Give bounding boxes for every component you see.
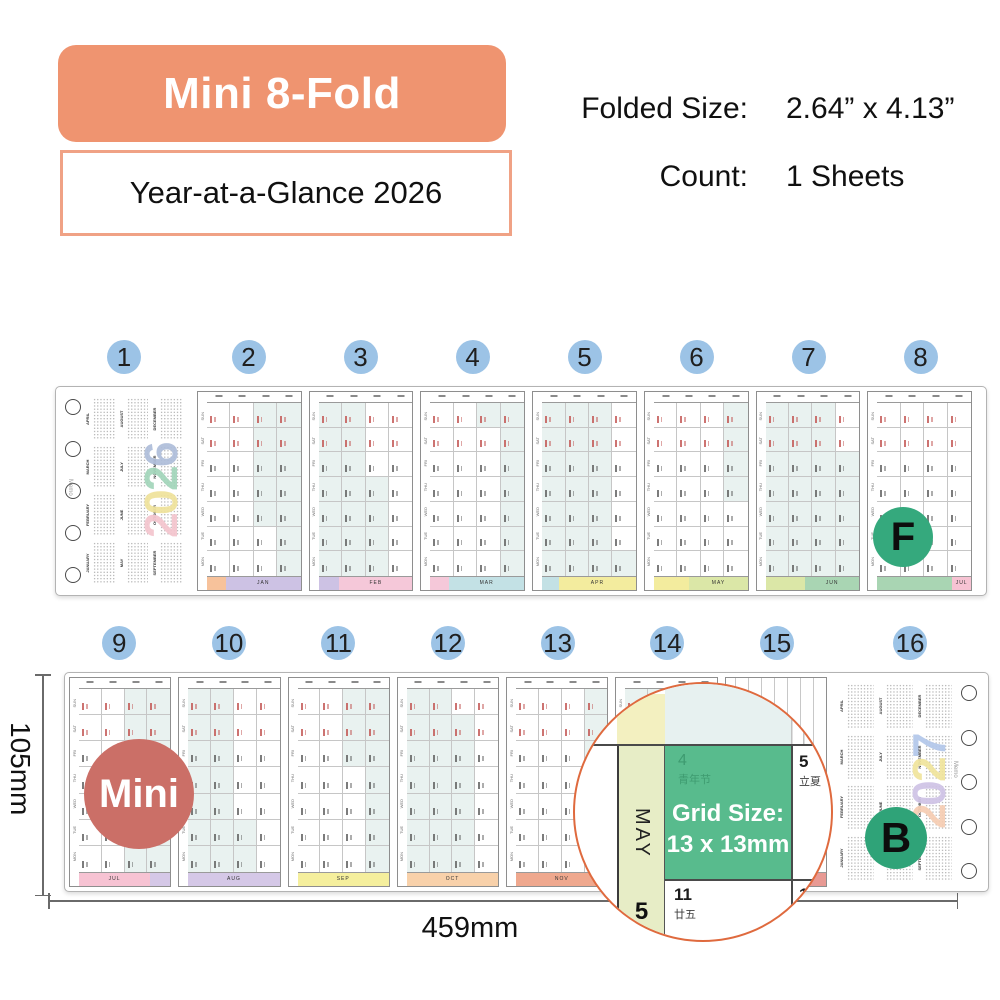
grid-cell	[320, 715, 343, 741]
day-label: SUN	[424, 412, 428, 420]
day-label: SAT	[291, 725, 295, 732]
grid-cell	[430, 403, 453, 428]
grid-cell	[407, 767, 430, 793]
day-label: WED	[201, 507, 205, 516]
grid-cell	[789, 527, 812, 552]
year-digit: 7	[902, 735, 956, 759]
mini-month: FEBRUARY	[88, 493, 115, 537]
grid-size-line2: 13 x 13mm	[665, 829, 791, 860]
spec-value-count: 1 Sheets	[786, 160, 954, 194]
grid-cell	[320, 846, 343, 872]
grid-cell	[948, 551, 971, 576]
weekday-tick	[234, 678, 257, 688]
grid-cell	[407, 846, 430, 872]
weekday-tick	[501, 392, 524, 402]
grid-cell	[319, 527, 342, 552]
grid-cell	[516, 820, 539, 846]
mini-month-label: AUGUST	[879, 698, 883, 715]
weekday-tick	[430, 392, 453, 402]
day-label: FRI	[510, 750, 514, 756]
month-footer: JUN	[766, 576, 860, 590]
day-label: WED	[424, 507, 428, 516]
grid-cell	[102, 715, 125, 741]
grid-cell	[901, 477, 924, 502]
may-month-band: MAY 5	[617, 746, 665, 940]
grid-cell	[562, 689, 585, 715]
weekday-tick	[320, 678, 343, 688]
grid-cell	[589, 452, 612, 477]
panel-number: 7	[792, 340, 826, 374]
weekday-header	[654, 392, 748, 403]
weekday-header	[542, 392, 636, 403]
day-label: THU	[759, 483, 763, 491]
grid-cell	[430, 502, 453, 527]
month-footer-segment: MAR	[449, 577, 524, 590]
day-label: SUN	[536, 412, 540, 420]
grid-cell	[589, 477, 612, 502]
grid-cell	[188, 689, 211, 715]
grid-cell	[452, 767, 475, 793]
day-label: TUE	[312, 532, 316, 540]
grid-cell	[257, 846, 280, 872]
panel-grid: OCT	[407, 678, 498, 886]
grid-cell	[298, 820, 321, 846]
grid-cell	[125, 689, 148, 715]
month-footer: JAN	[207, 576, 301, 590]
grid-cell	[924, 452, 947, 477]
panel-number-slot: 16	[835, 626, 985, 660]
grid-cell	[789, 477, 812, 502]
grid-cell	[452, 846, 475, 872]
grid-cell	[452, 820, 475, 846]
day-label: MON	[871, 557, 875, 566]
day-label: SAT	[312, 437, 316, 444]
grid-cell	[298, 741, 321, 767]
grid-cell	[230, 452, 253, 477]
spec-label-folded-size: Folded Size:	[548, 92, 748, 126]
grid-cell	[343, 794, 366, 820]
grid-cell	[836, 403, 859, 428]
mini-month-label: AUGUST	[120, 411, 124, 428]
binder-hole	[65, 525, 81, 541]
day-label: SAT	[400, 725, 404, 732]
grid-cell	[836, 452, 859, 477]
grid-cell	[430, 741, 453, 767]
day-label: TUE	[201, 532, 205, 540]
grid-cell	[724, 477, 747, 502]
grid-cell	[407, 715, 430, 741]
grid-cell	[701, 403, 724, 428]
panel-number-slot: 1	[59, 340, 189, 374]
grid-cell	[948, 428, 971, 453]
grid-cell	[254, 502, 277, 527]
grid-cell	[125, 846, 148, 872]
month-footer-segment	[542, 577, 559, 590]
grid-cell	[677, 527, 700, 552]
grid-cell	[477, 452, 500, 477]
grid-cell	[475, 715, 498, 741]
day-label: TUE	[536, 532, 540, 540]
month-footer: MAR	[430, 576, 524, 590]
year-digit: 2	[902, 758, 956, 782]
mini-month-label: MAY	[120, 559, 124, 568]
grid-cell	[539, 794, 562, 820]
grid-cell	[612, 403, 635, 428]
day-label: THU	[647, 483, 651, 491]
mini-month-texture	[93, 542, 115, 584]
week-grid	[654, 403, 748, 576]
grid-cell	[298, 794, 321, 820]
grid-cell	[230, 551, 253, 576]
weekday-tick	[207, 392, 230, 402]
panel-number: 6	[680, 340, 714, 374]
day-label: TUE	[291, 826, 295, 834]
weekday-tick	[539, 678, 562, 688]
grid-cell	[320, 794, 343, 820]
weekday-header	[319, 392, 413, 403]
grid-cell	[277, 527, 300, 552]
grid-cell	[836, 502, 859, 527]
day-label: FRI	[291, 750, 295, 756]
grid-cell	[539, 689, 562, 715]
day-label: SAT	[73, 725, 77, 732]
weekday-tick	[430, 678, 453, 688]
grid-cell	[566, 403, 589, 428]
grid-cell	[211, 820, 234, 846]
day-label: WED	[73, 799, 77, 808]
weekday-tick	[924, 392, 947, 402]
product-title-banner: Mini 8-Fold	[58, 45, 506, 142]
day-label-rail: SUNSATFRITHUWEDTUEMON	[868, 392, 877, 590]
grid-cell	[188, 820, 211, 846]
grid-cell	[407, 820, 430, 846]
grid-cell	[924, 477, 947, 502]
weekday-tick	[516, 678, 539, 688]
day-label: FRI	[400, 750, 404, 756]
memo-label: Memo	[67, 479, 73, 496]
grid-cell	[257, 794, 280, 820]
grid-cell	[677, 551, 700, 576]
grid-cell	[257, 767, 280, 793]
grid-cell	[342, 403, 365, 428]
grid-cell	[320, 767, 343, 793]
weekday-tick	[257, 678, 280, 688]
grid-cell	[766, 527, 789, 552]
grid-cell	[654, 477, 677, 502]
grid-cell	[701, 551, 724, 576]
day-label: THU	[424, 483, 428, 491]
grid-cell	[298, 767, 321, 793]
grid-cell	[366, 428, 389, 453]
calendar-panel: SUNSATFRITHUWEDTUEMONMAY	[644, 391, 749, 591]
panel-number: 3	[344, 340, 378, 374]
grid-cell	[724, 403, 747, 428]
grid-cell	[366, 767, 389, 793]
month-footer: FEB	[319, 576, 413, 590]
weekday-tick	[724, 392, 747, 402]
grid-cell	[948, 527, 971, 552]
grid-cell	[366, 689, 389, 715]
grid-cell	[612, 527, 635, 552]
grid-cell	[211, 794, 234, 820]
grid-cell	[207, 502, 230, 527]
grid-cell	[234, 846, 257, 872]
grid-cell	[342, 428, 365, 453]
mini-month-label: JULY	[879, 752, 883, 762]
year-digit: 2	[134, 467, 188, 491]
grid-cell	[147, 689, 170, 715]
month-footer: SEP	[298, 872, 389, 886]
day-label: TUE	[759, 532, 763, 540]
day-label-rail: SUNSATFRITHUWEDTUEMON	[533, 392, 542, 590]
week-grid	[207, 403, 301, 576]
highlight-cell-date: 4 青年节	[678, 752, 711, 787]
grid-cell	[501, 403, 524, 428]
panel-number-slot: 5	[532, 340, 637, 374]
grid-cell	[366, 820, 389, 846]
mini-month-label: APRIL	[840, 700, 844, 712]
panel-number-slot: 4	[420, 340, 525, 374]
grid-cell	[343, 846, 366, 872]
day-label-rail: SUNSATFRITHUWEDTUEMON	[507, 678, 516, 886]
binder-hole	[961, 730, 977, 746]
grid-cell	[654, 428, 677, 453]
grid-cell	[366, 551, 389, 576]
grid-cell	[612, 452, 635, 477]
notes-ruled-columns	[791, 684, 831, 746]
grid-cell	[475, 689, 498, 715]
grid-cell	[277, 502, 300, 527]
grid-cell	[812, 551, 835, 576]
weekday-tick	[562, 678, 585, 688]
grid-cell	[147, 846, 170, 872]
grid-cell	[389, 403, 412, 428]
day-label: WED	[312, 507, 316, 516]
month-footer: MAY	[654, 576, 748, 590]
grid-cell	[342, 477, 365, 502]
grid-cell	[454, 452, 477, 477]
year-overlay: 2026	[134, 393, 188, 589]
binder-hole	[65, 399, 81, 415]
grid-cell	[724, 452, 747, 477]
weekday-header	[877, 392, 971, 403]
grid-cell	[366, 794, 389, 820]
grid-cell	[836, 527, 859, 552]
day-label: SAT	[647, 437, 651, 444]
grid-cell	[877, 452, 900, 477]
day-label-rail: SUNSATFRITHUWEDTUEMON	[70, 678, 79, 886]
grid-cell	[207, 452, 230, 477]
grid-cell	[924, 403, 947, 428]
grid-cell	[430, 477, 453, 502]
grid-cell	[539, 820, 562, 846]
grid-cell	[102, 689, 125, 715]
grid-cell	[452, 715, 475, 741]
grid-cell	[407, 689, 430, 715]
grid-cell	[211, 767, 234, 793]
cell-note: 立夏	[799, 773, 821, 789]
panel-number-row: 12345678	[55, 340, 987, 374]
grid-cell	[677, 477, 700, 502]
day-label: TUE	[424, 532, 428, 540]
panel-number: 1	[107, 340, 141, 374]
grid-cell	[430, 715, 453, 741]
weekday-header	[207, 392, 301, 403]
day-label: TUE	[400, 826, 404, 834]
day-label: MON	[73, 852, 77, 861]
mini-month-label: JULY	[120, 462, 124, 472]
grid-cell	[475, 767, 498, 793]
month-footer-segment	[430, 577, 449, 590]
grid-cell	[501, 452, 524, 477]
grid-cell	[542, 477, 565, 502]
panel-grid: SEP	[298, 678, 389, 886]
day-label: THU	[536, 483, 540, 491]
day-label: SUN	[73, 699, 77, 707]
grid-cell	[211, 741, 234, 767]
grid-cell	[343, 767, 366, 793]
weekday-tick	[125, 678, 148, 688]
binder-hole	[961, 774, 977, 790]
grid-cell	[589, 527, 612, 552]
weekday-header	[79, 678, 170, 689]
grid-cell	[366, 477, 389, 502]
grid-cell	[366, 403, 389, 428]
grid-cell	[188, 846, 211, 872]
grid-cell	[612, 477, 635, 502]
day-label: SAT	[536, 437, 540, 444]
grid-cell	[234, 794, 257, 820]
grid-cell	[430, 452, 453, 477]
binder-hole	[961, 863, 977, 879]
panel-number-slot: 2	[196, 340, 301, 374]
grid-cell	[475, 846, 498, 872]
day-label-rail: SUNSATFRITHUWEDTUEMON	[645, 392, 654, 590]
mini-month-label: FEBRUARY	[840, 796, 844, 818]
day-label: MON	[291, 852, 295, 861]
month-footer-segment	[766, 577, 805, 590]
day-label: SUN	[400, 699, 404, 707]
weekday-tick	[812, 392, 835, 402]
weekday-tick	[366, 392, 389, 402]
day-label: THU	[312, 483, 316, 491]
grid-cell	[501, 551, 524, 576]
day-label: WED	[291, 799, 295, 808]
calendar-panel: SUNSATFRITHUWEDTUEMONSEP	[288, 677, 390, 887]
calendar-panel: SUNSATFRITHUWEDTUEMONMAR	[420, 391, 525, 591]
grid-cell	[677, 428, 700, 453]
weekday-header	[407, 678, 498, 689]
grid-cell	[389, 452, 412, 477]
grid-cell	[430, 428, 453, 453]
grid-cell	[298, 846, 321, 872]
day-label: FRI	[424, 460, 428, 466]
grid-cell	[207, 403, 230, 428]
grid-cell	[454, 403, 477, 428]
weekday-tick	[901, 392, 924, 402]
panel-number-slot: 6	[644, 340, 749, 374]
calendar-sheet-front: APRILAUGUSTDECEMBERMARCHJULYNOVEMBERFEBR…	[55, 386, 987, 596]
grid-cell	[257, 689, 280, 715]
grid-cell	[542, 428, 565, 453]
grid-cell	[542, 527, 565, 552]
panel-number-slot: 8	[868, 340, 973, 374]
grid-cell	[789, 502, 812, 527]
grid-cell	[319, 551, 342, 576]
panel-number-slot: 13	[506, 626, 609, 660]
day-label: MON	[400, 852, 404, 861]
grid-cell	[211, 846, 234, 872]
grid-cell	[254, 452, 277, 477]
panel-number-slot: 3	[308, 340, 413, 374]
day-label: WED	[759, 507, 763, 516]
grid-cell	[812, 428, 835, 453]
grid-cell	[430, 689, 453, 715]
panel-number: 11	[321, 626, 355, 660]
grid-cell	[452, 741, 475, 767]
weekday-tick	[566, 392, 589, 402]
binder-holes	[961, 685, 979, 879]
tinted-week-band	[665, 684, 791, 746]
grid-cell	[389, 502, 412, 527]
weekday-tick	[343, 678, 366, 688]
grid-cell	[585, 689, 608, 715]
panel-grid: JAN	[207, 392, 301, 590]
day-label: MON	[647, 557, 651, 566]
grid-cell	[454, 428, 477, 453]
mini-month-label: APRIL	[86, 413, 90, 425]
grid-cell	[542, 502, 565, 527]
calendar-cell-may11: 11 廿五	[674, 885, 696, 922]
grid-cell	[789, 452, 812, 477]
grid-cell	[234, 767, 257, 793]
mini-month: APRIL	[842, 683, 874, 730]
day-label: FRI	[182, 750, 186, 756]
page: Mini 8-Fold Year-at-a-Glance 2026 Folded…	[0, 0, 1000, 1000]
calendar-panel: SUNSATFRITHUWEDTUEMONJAN	[197, 391, 302, 591]
mini-month-label: MARCH	[840, 749, 844, 764]
grid-cell	[207, 551, 230, 576]
panel-grid: MAR	[430, 392, 524, 590]
highlight-day: 4	[678, 752, 711, 770]
mini-month-texture	[93, 446, 115, 488]
grid-cell	[877, 477, 900, 502]
grid-cell	[766, 502, 789, 527]
panel-number: 5	[568, 340, 602, 374]
panel-grid: FEB	[319, 392, 413, 590]
grid-cell	[343, 820, 366, 846]
grid-cell	[319, 428, 342, 453]
grid-cell	[901, 452, 924, 477]
grid-cell	[789, 403, 812, 428]
grid-cell	[342, 452, 365, 477]
may-number: 5	[635, 898, 648, 926]
grid-cell	[877, 403, 900, 428]
weekday-tick	[454, 392, 477, 402]
weekday-header	[766, 392, 860, 403]
mini-product-badge: Mini	[84, 739, 194, 849]
mini-month-label: JANUARY	[840, 848, 844, 867]
day-label: MON	[510, 852, 514, 861]
mini-month-label: MARCH	[86, 460, 90, 475]
weekday-tick	[230, 392, 253, 402]
weekday-tick	[625, 678, 648, 688]
mini-month-texture	[93, 494, 115, 536]
weekday-tick	[877, 392, 900, 402]
grid-cell	[230, 428, 253, 453]
panel-number: 15	[760, 626, 794, 660]
grid-cell	[277, 403, 300, 428]
